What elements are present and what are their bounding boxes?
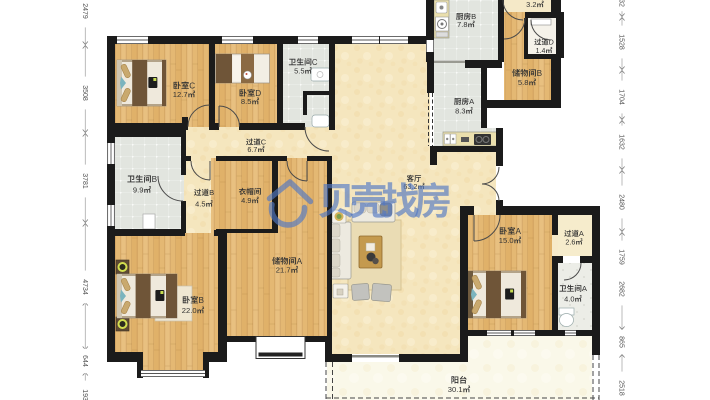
svg-text:C: C bbox=[312, 58, 318, 67]
svg-text:3508: 3508 bbox=[81, 85, 88, 101]
svg-text:2518: 2518 bbox=[618, 380, 625, 396]
svg-text:4.5: 4.5 bbox=[195, 200, 205, 209]
svg-text:8.3: 8.3 bbox=[455, 107, 465, 116]
svg-text:9.9: 9.9 bbox=[133, 186, 144, 195]
svg-text:3781: 3781 bbox=[81, 173, 88, 189]
svg-text:B: B bbox=[209, 188, 214, 197]
svg-text:C: C bbox=[189, 81, 195, 90]
svg-text:21.7: 21.7 bbox=[276, 266, 291, 275]
svg-text:B: B bbox=[537, 69, 543, 78]
svg-text:12.7: 12.7 bbox=[173, 90, 188, 99]
svg-text:B: B bbox=[198, 296, 204, 305]
svg-text:3.2: 3.2 bbox=[526, 0, 536, 9]
svg-text:1528: 1528 bbox=[618, 34, 625, 50]
svg-text:7.8: 7.8 bbox=[457, 20, 467, 29]
svg-text:A: A bbox=[297, 257, 303, 266]
svg-text:C: C bbox=[261, 138, 267, 147]
svg-text:32: 32 bbox=[618, 0, 625, 7]
svg-text:644: 644 bbox=[81, 355, 88, 367]
svg-text:B: B bbox=[152, 175, 158, 184]
svg-text:15.0: 15.0 bbox=[499, 236, 514, 245]
svg-text:2479: 2479 bbox=[81, 3, 88, 19]
svg-text:A: A bbox=[579, 229, 584, 238]
svg-text:8.5: 8.5 bbox=[241, 97, 252, 106]
svg-text:4.9: 4.9 bbox=[241, 196, 251, 205]
svg-text:865: 865 bbox=[618, 336, 625, 348]
svg-text:2682: 2682 bbox=[618, 281, 625, 297]
svg-text:30.1: 30.1 bbox=[448, 385, 463, 394]
svg-text:4734: 4734 bbox=[81, 279, 88, 295]
svg-text:D: D bbox=[549, 38, 554, 47]
svg-text:1759: 1759 bbox=[618, 249, 625, 265]
svg-text:4.0: 4.0 bbox=[564, 295, 574, 304]
svg-text:1632: 1632 bbox=[618, 134, 625, 150]
svg-text:2480: 2480 bbox=[618, 194, 625, 210]
svg-text:B: B bbox=[471, 12, 476, 21]
svg-text:6.7: 6.7 bbox=[247, 145, 257, 154]
svg-text:5.5: 5.5 bbox=[294, 67, 304, 76]
svg-text:22.0: 22.0 bbox=[182, 306, 197, 315]
svg-text:A: A bbox=[515, 227, 521, 236]
svg-text:D: D bbox=[255, 89, 261, 98]
svg-text:1.4: 1.4 bbox=[536, 48, 546, 55]
svg-text:2.6: 2.6 bbox=[565, 238, 575, 247]
svg-text:1934: 1934 bbox=[81, 389, 88, 400]
svg-text:1704: 1704 bbox=[618, 89, 625, 105]
svg-text:5.8: 5.8 bbox=[518, 78, 529, 87]
